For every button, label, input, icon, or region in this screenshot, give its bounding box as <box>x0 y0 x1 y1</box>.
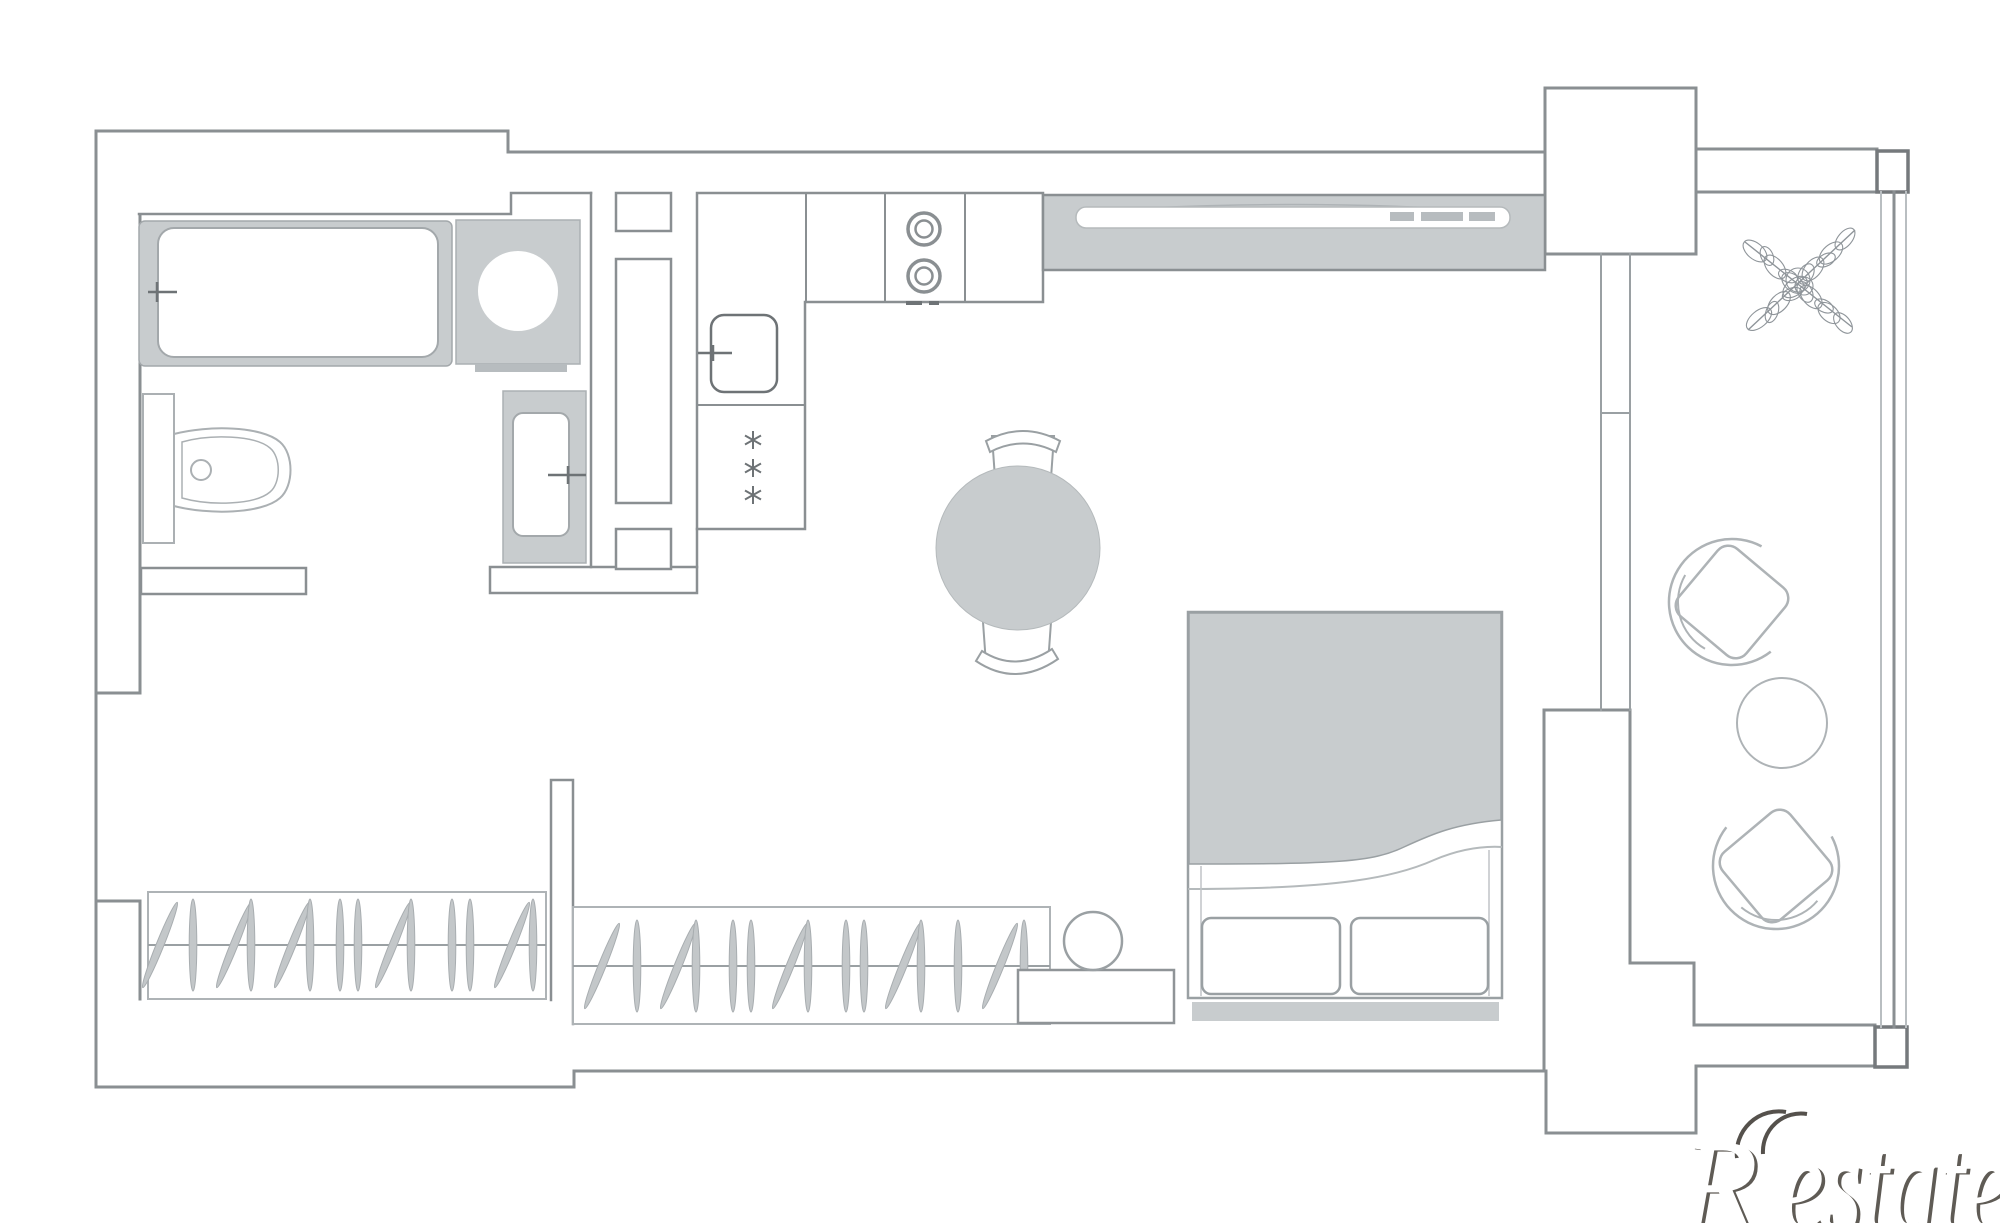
svg-text:R: R <box>1677 1114 1757 1223</box>
svg-text:estate: estate <box>1780 1107 2000 1223</box>
